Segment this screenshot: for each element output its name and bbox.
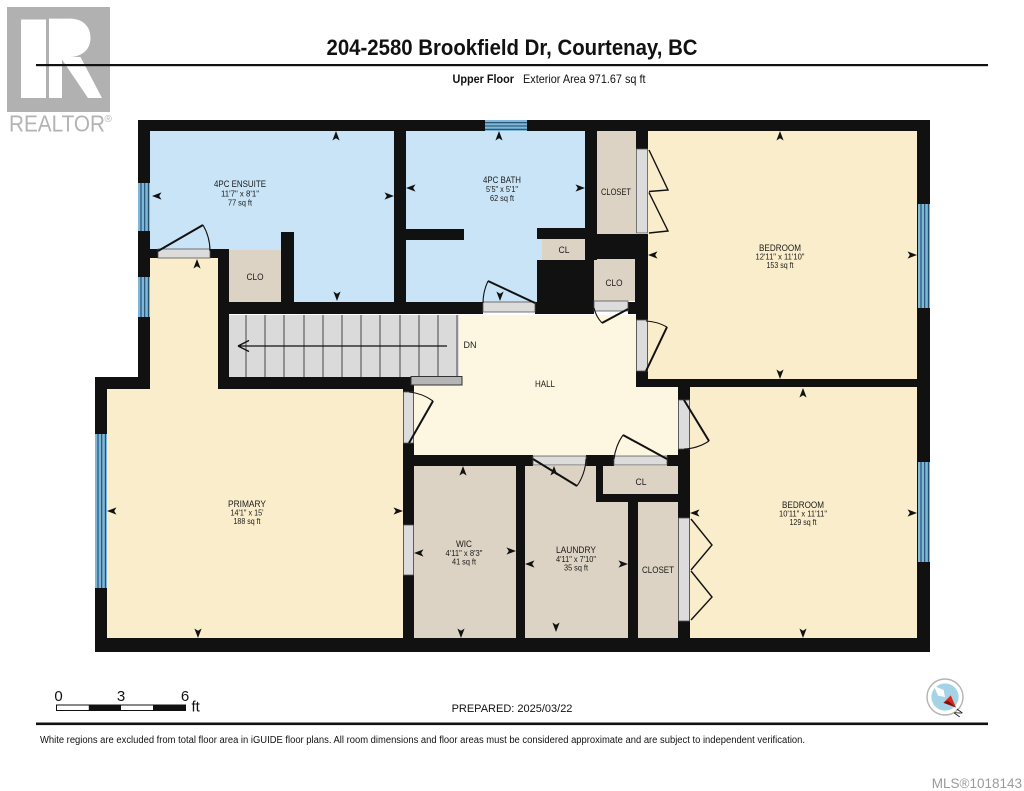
svg-text:CL: CL — [636, 477, 647, 487]
svg-text:3: 3 — [117, 688, 125, 705]
svg-text:129 sq ft: 129 sq ft — [790, 517, 818, 527]
svg-text:153 sq ft: 153 sq ft — [767, 260, 795, 270]
svg-text:Upper Floor Exterior Area 97: Upper Floor Exterior Area 971.67 sq ft — [453, 72, 647, 86]
svg-text:188 sq ft: 188 sq ft — [234, 516, 262, 526]
svg-text:White regions are excluded fro: White regions are excluded from total fl… — [40, 735, 805, 746]
svg-text:CLO: CLO — [606, 278, 623, 288]
svg-text:DN: DN — [464, 340, 477, 351]
svg-text:REALTOR: REALTOR — [9, 111, 105, 137]
svg-text:62 sq ft: 62 sq ft — [490, 193, 515, 203]
svg-text:MLS®1018143: MLS®1018143 — [932, 776, 1022, 791]
svg-text:CLOSET: CLOSET — [601, 187, 632, 197]
svg-text:0: 0 — [54, 688, 62, 705]
svg-text:77 sq ft: 77 sq ft — [228, 198, 253, 208]
svg-text:35 sq ft: 35 sq ft — [564, 563, 589, 573]
svg-text:CLO: CLO — [247, 272, 264, 282]
svg-text:204-2580 Brookfield Dr, Courte: 204-2580 Brookfield Dr, Courtenay, BC — [327, 35, 698, 60]
svg-text:HALL: HALL — [535, 379, 555, 390]
svg-text:®: ® — [105, 114, 113, 125]
svg-text:6: 6 — [181, 688, 189, 705]
svg-text:CLOSET: CLOSET — [642, 565, 675, 575]
svg-text:CL: CL — [559, 245, 570, 255]
svg-text:ft: ft — [192, 699, 201, 716]
svg-text:PREPARED: 2025/03/22: PREPARED: 2025/03/22 — [452, 703, 573, 715]
svg-text:41 sq ft: 41 sq ft — [452, 557, 477, 567]
